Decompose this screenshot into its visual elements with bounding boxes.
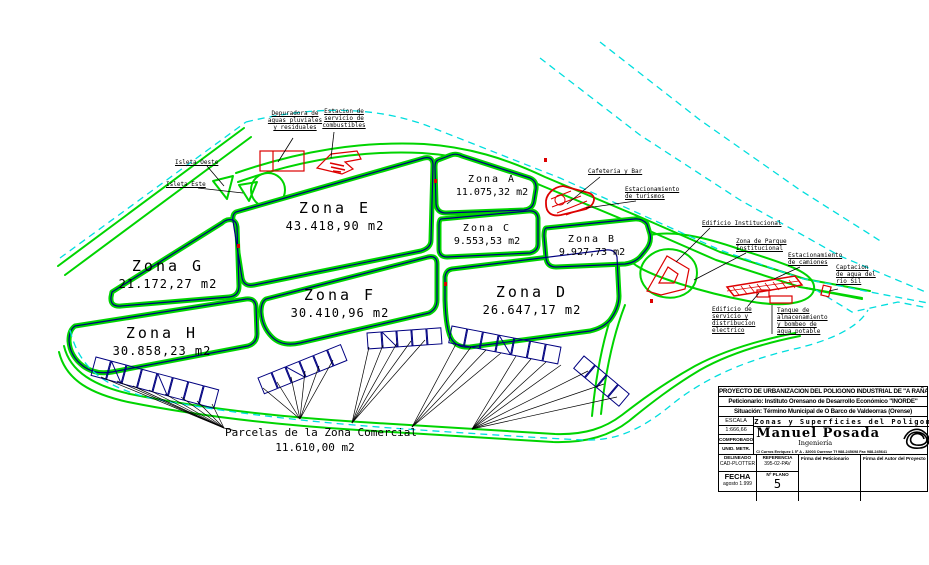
titleblock-referencia-plano: REFERENCIA 395-02-PAV Nº PLANO 5 [757,455,799,501]
water-tank-building [770,296,792,303]
firma-autor-cell: Firma del Autor del Proyecto [861,455,927,501]
firm-logo [901,427,929,449]
label-parque-institucional: Zona de Parque Institucional [736,238,787,252]
firm-block: Manuel Posada Ingeniería C/ Curros Enriq… [754,427,929,454]
cafeteria-building [546,186,594,215]
titleblock-left-column: ESCALA 1:666,66 COMPROBADO UNID. METR. [719,417,754,454]
label-isleta-este: Isleta Este [166,181,206,188]
titleblock-peticionario: Peticionario: Instituto Orensano de Desa… [719,397,927,407]
label-depuradora: Depuradora de aguas pluviales y residual… [266,110,324,131]
titleblock-project: PROYECTO DE URBANIZACION DEL POLIGONO IN… [719,387,927,397]
institutional-building [647,256,689,295]
comprobado-label: COMPROBADO [719,435,753,445]
label-captacion-agua: Captacion de agua del rio Sil [836,264,876,285]
firma-peticionario-cell: Firma del Peticionario [799,455,861,501]
delineado-value: CAD-PLOTTER [719,461,756,467]
fecha-value: agosto 1.999 [719,481,756,487]
referencia-value: 395-02-PAV [757,461,798,467]
title-block: PROYECTO DE URBANIZACION DEL POLIGONO IN… [718,386,928,492]
escala-value: 1:666,66 [719,426,753,435]
num-plano-value: 5 [757,478,798,491]
plano-title: Zonas y Superficies del Poligono [754,417,929,427]
firm-subtitle: Ingeniería [798,439,832,447]
label-estacion-servicio: Estacion de servicio de combustibles [318,108,370,129]
label-edificio-servicio: Edificio de servicio y distribucion elec… [712,306,755,334]
unidades-label: UNID. METR. [719,444,753,454]
titleblock-delineado-fecha: DELINEADO CAD-PLOTTER FECHA agosto 1.999 [719,455,757,501]
fecha-label: FECHA [719,472,756,481]
label-cafeteria: Cafeteria y Bar [588,168,642,175]
label-tanque-agua: Tanque de almacenamiento y bombeo de agu… [777,307,828,335]
cad-plan-canvas: Zona E 43.418,90 m2 Zona G 21.172,27 m2 … [0,0,929,565]
label-edificio-institucional: Edificio Institucional [702,220,781,227]
label-estacionamiento-camiones: Estacionamiento de camiones [788,252,842,266]
label-parcelas-comerciales: Parcelas de la Zona Comercial 11.610,00 … [225,425,405,455]
label-estacionamiento-turismos: Estacionamiento de turismos [625,186,679,200]
firm-address: C/ Curros Enriquez 1 5º A - 32003 Ourens… [756,450,887,454]
titleblock-situacion: Situación: Término Municipal de O Barco … [719,407,927,417]
escala-label: ESCALA [719,417,753,426]
truck-parking-area [727,276,802,296]
label-isleta-oeste: Isleta Oeste [175,159,218,166]
